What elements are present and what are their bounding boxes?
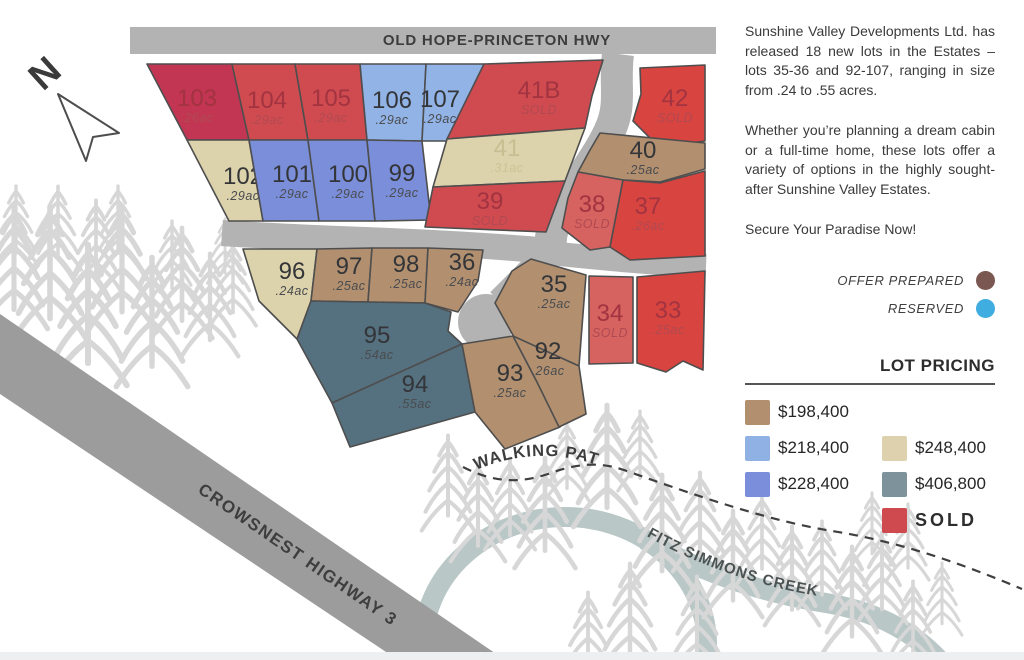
price-swatch-icon: [882, 436, 907, 461]
lot-105-number: 105: [311, 85, 351, 112]
lot-102-detail: .29ac: [226, 189, 259, 203]
lot-106[interactable]: 106.29ac: [360, 64, 426, 141]
lot-41B-detail: SOLD: [521, 103, 557, 117]
pine-tree-icon: [422, 436, 475, 531]
lot-101-detail: .29ac: [275, 187, 308, 201]
lot-34[interactable]: 34SOLD: [589, 276, 633, 364]
lot-35-number: 35: [541, 271, 568, 298]
compass-n-label: N: [21, 49, 70, 99]
pine-tree-icon: [601, 564, 660, 660]
price-label: $248,400: [913, 438, 995, 458]
pine-tree-icon: [150, 221, 194, 301]
price-label: $198,400: [776, 402, 876, 422]
lot-105[interactable]: 105.29ac: [295, 64, 367, 140]
lot-40-number: 40: [630, 137, 657, 164]
lot-94-detail: .55ac: [398, 397, 431, 411]
lot-98-detail: .25ac: [389, 277, 422, 291]
lot-107-number: 107: [420, 86, 460, 113]
pine-tree-icon: [922, 563, 962, 635]
status-circle-icon: [976, 299, 995, 318]
lot-106-number: 106: [372, 87, 412, 114]
cta-text: Secure Your Paradise Now!: [745, 220, 995, 240]
lot-98[interactable]: 98.25ac: [368, 248, 428, 303]
price-swatch-icon: [882, 508, 907, 533]
lot-98-number: 98: [393, 251, 420, 278]
lot-36-detail: .24ac: [445, 275, 478, 289]
price-legend: $198,400$218,400$248,400$228,400$406,800…: [745, 400, 995, 533]
crowsnest-highway-label: CROWSNEST HIGHWAY 3: [195, 480, 401, 630]
pine-tree-icon: [670, 577, 725, 660]
price-label: $406,800: [913, 474, 995, 494]
lot-104-detail: .29ac: [250, 113, 283, 127]
lot-33[interactable]: 33.25ac: [637, 271, 705, 372]
price-label: $228,400: [776, 474, 876, 494]
lot-107-detail: .29ac: [423, 112, 456, 126]
lot-93-number: 93: [497, 360, 524, 387]
price-swatch-icon: [745, 472, 770, 497]
lot-map-page: 103.26ac104.29ac105.29ac106.29ac107.29ac…: [0, 0, 1024, 660]
price-label: SOLD: [913, 510, 995, 531]
lot-96-detail: .24ac: [275, 284, 308, 298]
lot-34-detail: SOLD: [592, 326, 628, 340]
lot-39[interactable]: 39SOLD: [425, 181, 565, 232]
lot-37-detail: .26ac: [631, 219, 664, 233]
lot-103-number: 103: [177, 85, 217, 112]
lot-103-detail: .26ac: [180, 111, 213, 125]
lot-104-number: 104: [247, 87, 287, 114]
lot-38-detail: SOLD: [574, 217, 610, 231]
lot-97-detail: .25ac: [332, 279, 365, 293]
lot-39-detail: SOLD: [472, 214, 508, 228]
lot-35-detail: .25ac: [537, 297, 570, 311]
lot-92-number: 92: [535, 338, 562, 365]
intro-paragraph: Sunshine Valley Developments Ltd. has re…: [745, 22, 995, 100]
lot-40-detail: .25ac: [626, 163, 659, 177]
lot-33-number: 33: [655, 297, 682, 324]
lot-95-detail: .54ac: [360, 348, 393, 362]
bottom-edge-strip: [0, 652, 1024, 660]
status-legend-row-0: OFFER PREPARED: [745, 267, 995, 295]
lot-42-detail: SOLD: [657, 111, 693, 125]
lot-101-number: 101: [272, 161, 312, 188]
status-legend-label: OFFER PREPARED: [837, 273, 964, 288]
lot-36-number: 36: [449, 249, 476, 276]
status-legend-label: RESERVED: [888, 301, 964, 316]
lot-34-number: 34: [597, 300, 624, 327]
info-panel: Sunshine Valley Developments Ltd. has re…: [745, 22, 995, 533]
body-paragraph: Whether you’re planning a dream cabin or…: [745, 121, 995, 199]
lot-93-detail: .25ac: [493, 386, 526, 400]
lot-95-number: 95: [364, 322, 391, 349]
lot-94-number: 94: [402, 371, 429, 398]
status-legend-row-1: RESERVED: [745, 295, 995, 323]
lot-38-number: 38: [579, 191, 606, 218]
lot-100-detail: .29ac: [331, 187, 364, 201]
pine-tree-icon: [485, 458, 535, 549]
lot-41-detail: .31ac: [490, 161, 523, 175]
status-legend: OFFER PREPAREDRESERVED: [745, 267, 995, 323]
lot-42[interactable]: 42SOLD: [633, 65, 705, 147]
lot-99-detail: .29ac: [385, 186, 418, 200]
lot-96-number: 96: [279, 258, 306, 285]
top-highway-label: OLD HOPE-PRINCETON HWY: [383, 32, 611, 49]
lot-103[interactable]: 103.26ac: [147, 64, 249, 140]
lot-100[interactable]: 100.29ac: [308, 140, 375, 221]
lot-100-number: 100: [328, 161, 368, 188]
price-swatch-icon: [745, 436, 770, 461]
pricing-divider: [745, 383, 995, 385]
lot-33-detail: .25ac: [651, 323, 684, 337]
price-swatch-icon: [745, 400, 770, 425]
compass: N: [21, 49, 119, 161]
lot-105-detail: .29ac: [314, 111, 347, 125]
lot-41-number: 41: [494, 135, 521, 162]
lot-97[interactable]: 97.25ac: [311, 248, 372, 302]
price-swatch-icon: [882, 472, 907, 497]
pricing-title: LOT PRICING: [745, 356, 995, 376]
lot-41B-number: 41B: [518, 77, 561, 104]
lot-42-number: 42: [662, 85, 689, 112]
lot-99[interactable]: 99.29ac: [367, 140, 431, 221]
status-circle-icon: [976, 271, 995, 290]
lot-97-number: 97: [336, 253, 363, 280]
price-label: $218,400: [776, 438, 876, 458]
lot-99-number: 99: [389, 160, 416, 187]
lot-37[interactable]: 37.26ac: [610, 171, 705, 260]
lot-106-detail: .29ac: [375, 113, 408, 127]
compass-arrow-icon: [58, 94, 119, 161]
lot-37-number: 37: [635, 193, 662, 220]
lot-39-number: 39: [477, 188, 504, 215]
lot-92-detail: .26ac: [531, 364, 564, 378]
